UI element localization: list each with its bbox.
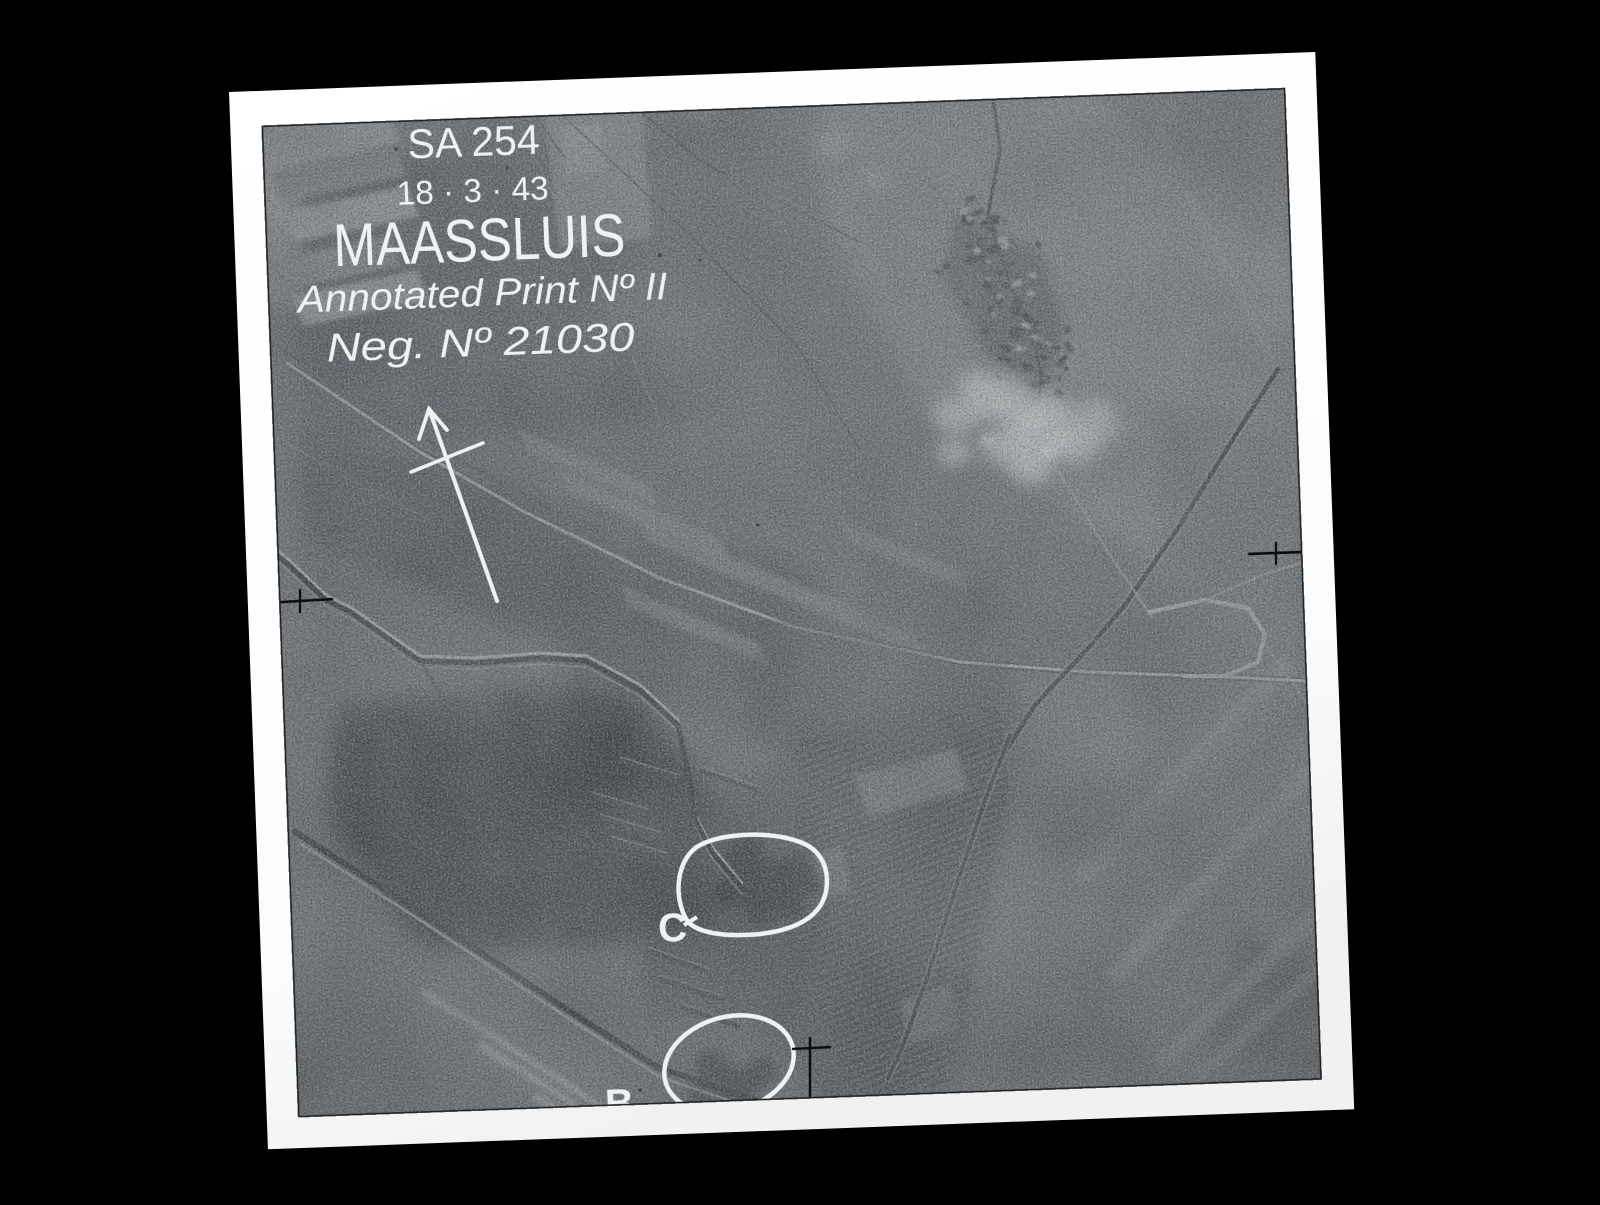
- svg-text:SA 254: SA 254: [407, 116, 541, 168]
- svg-text:C: C: [657, 906, 687, 951]
- svg-text:MAASSLUIS: MAASSLUIS: [332, 202, 626, 280]
